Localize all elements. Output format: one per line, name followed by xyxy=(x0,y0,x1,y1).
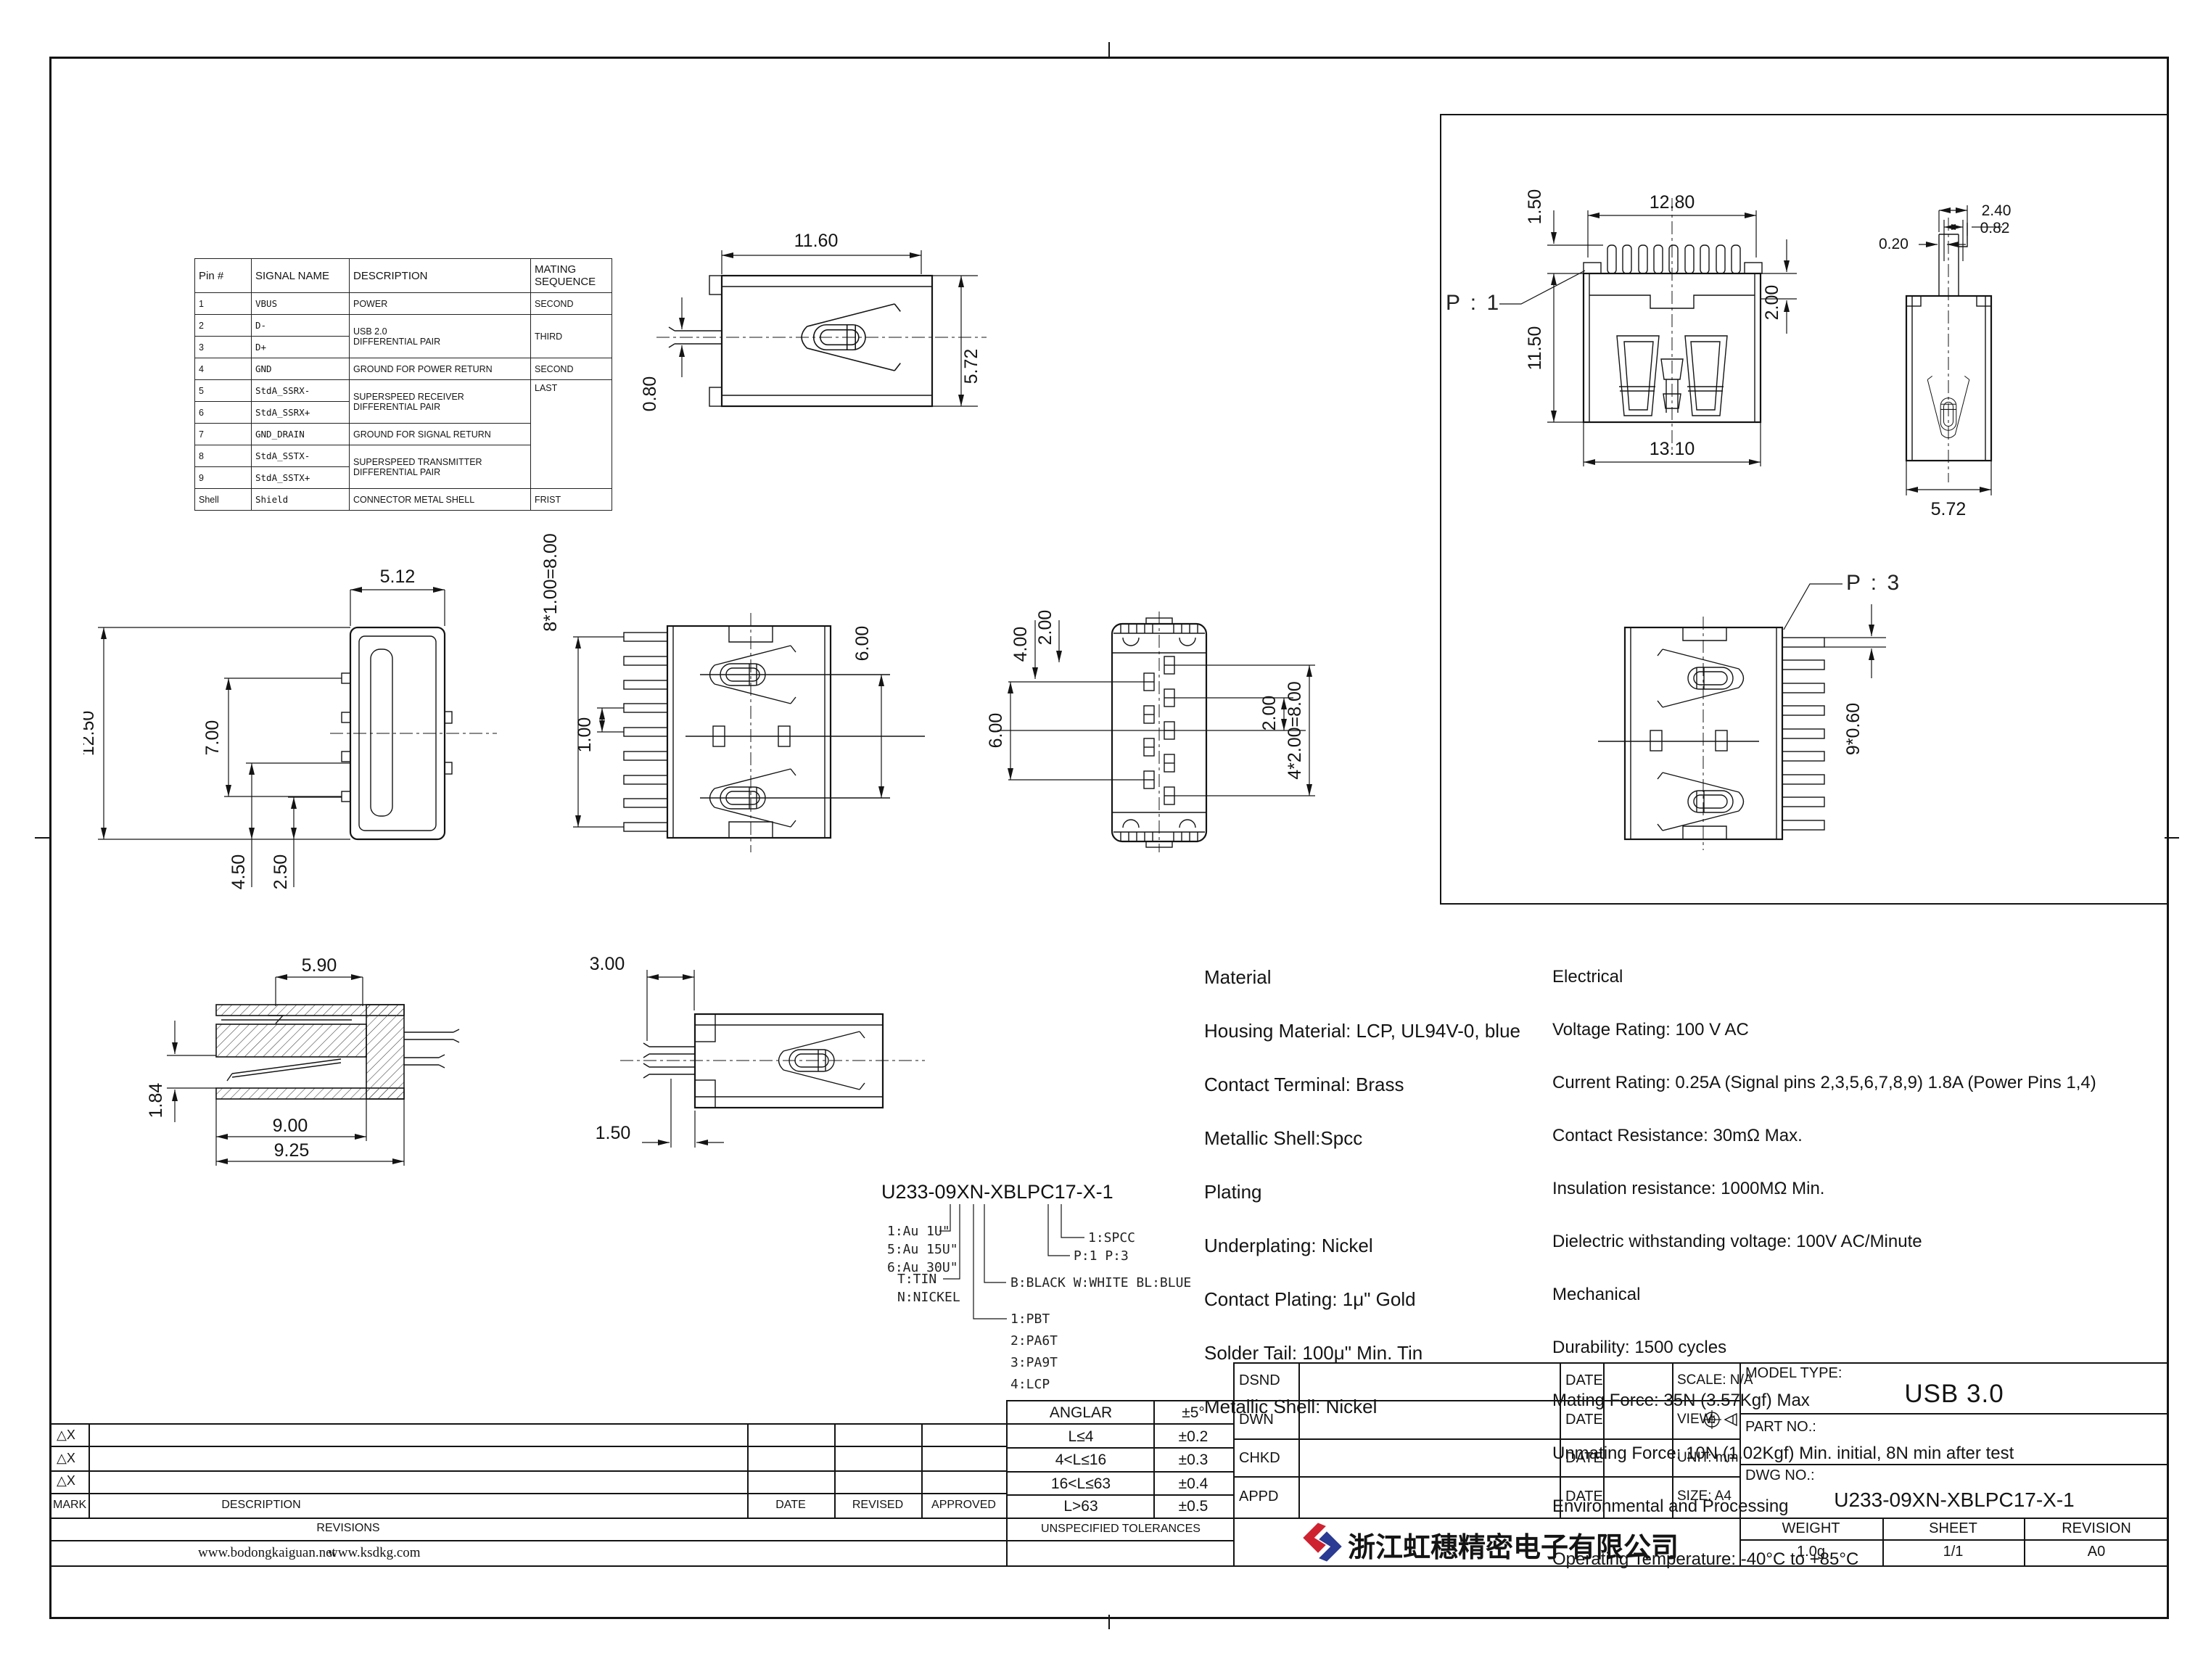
pin-description: CONNECTOR METAL SHELL xyxy=(350,489,531,511)
date-header: DATE xyxy=(747,1499,834,1512)
dim-label: 11.60 xyxy=(794,231,839,251)
tolerance-range: L>63 xyxy=(1008,1498,1153,1515)
view-label-p3: P : 3 xyxy=(1846,571,1901,595)
pin-description: SUPERSPEED RECEIVER DIFFERENTIAL PAIR xyxy=(350,380,531,424)
view-tail: 3.00 1.50 xyxy=(562,925,947,1208)
pin-description: GROUND FOR POWER RETURN xyxy=(350,358,531,380)
bottom-view-geometry xyxy=(1112,612,1206,852)
dim-label: 1.00 xyxy=(575,717,595,753)
dim-label: 1.84 xyxy=(146,1083,166,1119)
pin-number: 6 xyxy=(195,402,252,424)
dim-label: 5.72 xyxy=(1931,499,1967,519)
dim-label: 2.00 xyxy=(1259,696,1280,731)
tail-view-dimensions xyxy=(642,970,724,1148)
top-pins xyxy=(1607,245,1740,273)
dim-label: 12.80 xyxy=(1650,192,1695,213)
note-line: Housing Material: LCP, UL94V-0, blue xyxy=(1204,1017,1520,1045)
view-section: 5.90 1.84 9.00 9.25 xyxy=(127,925,482,1208)
date-label: DATE xyxy=(1565,1450,1603,1467)
dwg-no-value: U233-09XN-XBLPC17-X-1 xyxy=(1739,1488,2169,1512)
mating-sequence: SECOND xyxy=(531,358,612,380)
plating-option: T:TIN xyxy=(897,1272,936,1287)
view-side-upper: 11.60 5.72 0.80 xyxy=(638,189,1030,464)
note-line: Dielectric withstanding voltage: 100V AC… xyxy=(1552,1228,2096,1255)
signal-name: GND xyxy=(252,358,350,380)
dim-label: 11.50 xyxy=(1525,326,1545,371)
view-top-right-p3: P : 3 9*0.60 xyxy=(1578,533,2046,903)
housing-option: 2:PA6T xyxy=(1010,1333,1058,1348)
note-line: Plating xyxy=(1204,1178,1520,1206)
signal-name: StdA_SSRX+ xyxy=(252,402,350,424)
pin-number: 4 xyxy=(195,358,252,380)
dim-label: 3.00 xyxy=(590,954,625,974)
solder-pins xyxy=(624,633,667,831)
mating-sequence: SECOND xyxy=(531,293,612,315)
dim-label: 12.50 xyxy=(83,711,98,757)
signal-name: Shield xyxy=(252,489,350,511)
part-no-label: PART NO.: xyxy=(1745,1419,1816,1436)
signal-name: D- xyxy=(252,315,350,337)
tolerance-range: 4<L≤16 xyxy=(1008,1452,1153,1469)
website-link[interactable]: www.bodongkaiguan.net xyxy=(198,1545,336,1561)
pin-number: 9 xyxy=(195,467,252,489)
tolerance-value: ±0.3 xyxy=(1153,1452,1233,1469)
projection-symbol-icon xyxy=(1703,1408,1738,1431)
col-pin: Pin # xyxy=(195,259,252,293)
dim-label: 1.50 xyxy=(1525,189,1545,225)
side-view-dimensions xyxy=(682,250,978,406)
plating-option: N:NICKEL xyxy=(897,1290,960,1305)
size-value: SIZE: A4 xyxy=(1677,1488,1732,1504)
view-top-left: 8*1.00=8.00 1.00 6.00 xyxy=(533,504,976,889)
pin-table-header-row: Pin # SIGNAL NAME DESCRIPTION MATING SEQ… xyxy=(195,259,612,293)
view-profile: 5.12 12.50 7.00 4.50 2.50 xyxy=(83,548,504,925)
tolerance-value: ±5° xyxy=(1153,1404,1233,1422)
dim-label: 0.80 xyxy=(640,376,660,412)
stem-view-geometry xyxy=(1906,218,1991,482)
pin-description: SUPERSPEED TRANSMITTER DIFFERENTIAL PAIR xyxy=(350,445,531,489)
tail-view-geometry xyxy=(620,1014,925,1108)
dim-label: 6.00 xyxy=(986,713,1006,749)
website-link[interactable]: www.ksdkg.com xyxy=(328,1545,421,1561)
col-signal: SIGNAL NAME xyxy=(252,259,350,293)
solder-pins xyxy=(1782,638,1824,830)
dim-label: 4.00 xyxy=(1010,627,1031,662)
port-options: P:1 P:3 xyxy=(1074,1248,1129,1264)
top-view-right-dimensions xyxy=(1784,584,1886,678)
gold-option: 1:Au 1U" xyxy=(887,1224,950,1239)
centering-tick-bottom xyxy=(1108,1615,1110,1629)
sheet-label: SHEET xyxy=(1882,1520,2024,1537)
dim-label: 8*1.00=8.00 xyxy=(540,533,561,632)
revisions-title: REVISIONS xyxy=(283,1522,413,1535)
table-row: 1 VBUS POWER SECOND xyxy=(195,293,612,315)
part-number-leader-lines xyxy=(939,1204,1084,1319)
dim-label: 13.10 xyxy=(1650,439,1695,459)
pin-number: 5 xyxy=(195,380,252,402)
pin-number: 3 xyxy=(195,337,252,358)
dim-label: 0.20 xyxy=(1879,236,1909,252)
top-view-geometry xyxy=(624,613,925,852)
dim-label: 2.00 xyxy=(1762,285,1782,321)
dim-label: 1.50 xyxy=(596,1123,631,1143)
table-row: 5 StdA_SSRX- SUPERSPEED RECEIVER DIFFERE… xyxy=(195,380,612,402)
dim-label: 9.25 xyxy=(274,1140,310,1161)
weight-value: 1.0g xyxy=(1739,1544,1882,1560)
dwg-no-label: DWG NO.: xyxy=(1745,1467,1815,1484)
tolerance-footer: UNSPECIFIED TOLERANCES xyxy=(1008,1523,1233,1536)
view-bottom: 4.00 2.00 6.00 2.00 4*2.00=8.00 xyxy=(983,548,1338,903)
note-line: Durability: 1500 cycles xyxy=(1552,1334,2096,1361)
pin-description: GROUND FOR SIGNAL RETURN xyxy=(350,424,531,445)
approved-header: APPROVED xyxy=(921,1499,1006,1512)
mark-header: MARK xyxy=(53,1499,86,1512)
view-label-p1: P : 1 xyxy=(1446,291,1501,315)
mating-sequence: LAST xyxy=(531,380,612,489)
note-line: Contact Plating: 1μ" Gold xyxy=(1204,1285,1520,1313)
section-geometry xyxy=(216,1005,459,1099)
dim-label: 5.12 xyxy=(380,567,416,587)
pin-assignment-table: Pin # SIGNAL NAME DESCRIPTION MATING SEQ… xyxy=(194,258,612,511)
description-header: DESCRIPTION xyxy=(196,1499,326,1512)
note-line: Insulation resistance: 1000MΩ Min. xyxy=(1552,1175,2096,1202)
front-view-geometry xyxy=(1584,198,1762,455)
tolerance-value: ±0.5 xyxy=(1153,1498,1233,1515)
color-options: B:BLACK W:WHITE BL:BLUE xyxy=(1010,1275,1191,1290)
tolerance-range: L≤4 xyxy=(1008,1428,1153,1446)
pin-description: POWER xyxy=(350,293,531,315)
revision-value: A0 xyxy=(2024,1544,2169,1560)
note-line: Electrical xyxy=(1552,963,2096,990)
dim-label: 4.50 xyxy=(228,855,249,890)
dim-label: 0.82 xyxy=(1980,220,2010,236)
dim-label: 9*0.60 xyxy=(1843,703,1864,755)
pin-description: USB 2.0 DIFFERENTIAL PAIR xyxy=(350,315,531,358)
pin-number: Shell xyxy=(195,489,252,511)
note-line: Contact Resistance: 30mΩ Max. xyxy=(1552,1122,2096,1149)
revision-mark: △X xyxy=(57,1473,75,1488)
note-line: Contact Terminal: Brass xyxy=(1204,1071,1520,1098)
tolerance-value: ±0.4 xyxy=(1153,1475,1233,1493)
note-line: Underplating: Nickel xyxy=(1204,1232,1520,1259)
unit-value: UNIT: mm xyxy=(1677,1450,1738,1466)
shell-option: 1:SPCC xyxy=(1088,1230,1135,1245)
note-line: Current Rating: 0.25A (Signal pins 2,3,5… xyxy=(1552,1069,2096,1096)
model-type-value: USB 3.0 xyxy=(1739,1380,2169,1409)
col-description: DESCRIPTION xyxy=(350,259,531,293)
note-line: Mechanical xyxy=(1552,1281,2096,1308)
dim-label: 5.72 xyxy=(961,349,981,384)
gold-option: 5:Au 15U" xyxy=(887,1242,958,1257)
centering-tick-top xyxy=(1108,42,1110,57)
date-label: DATE xyxy=(1565,1412,1603,1428)
dim-label: 6.00 xyxy=(852,626,873,662)
pin-number: 1 xyxy=(195,293,252,315)
signal-name: VBUS xyxy=(252,293,350,315)
weight-label: WEIGHT xyxy=(1739,1520,1882,1537)
side-view-geometry xyxy=(656,276,987,406)
dim-label: 2.50 xyxy=(271,855,291,890)
note-line: Metallic Shell:Spcc xyxy=(1204,1124,1520,1152)
profile-view-geometry xyxy=(330,627,497,839)
dim-label: 2.00 xyxy=(1035,610,1055,646)
tolerance-range: 16<L≤63 xyxy=(1008,1475,1153,1493)
dim-label: 4*2.00=8.00 xyxy=(1285,681,1305,780)
signal-name: StdA_SSTX+ xyxy=(252,467,350,489)
drawing-sheet: Pin # SIGNAL NAME DESCRIPTION MATING SEQ… xyxy=(0,0,2211,1680)
table-row: 4 GND GROUND FOR POWER RETURN SECOND xyxy=(195,358,612,380)
housing-option: 1:PBT xyxy=(1010,1312,1050,1327)
company-logo-icon xyxy=(1302,1522,1343,1562)
part-number-title: U233-09XN-XBLPC17-X-1 xyxy=(881,1181,1113,1203)
col-mating: MATING SEQUENCE xyxy=(531,259,612,293)
date-label: DATE xyxy=(1565,1488,1603,1505)
dim-label: 2.40 xyxy=(1982,202,2012,219)
view-stem: 2.40 0.82 0.20 5.72 xyxy=(1857,178,2169,533)
sign-label-chkd: CHKD xyxy=(1239,1450,1280,1467)
top-view-right-geometry xyxy=(1598,617,1824,850)
sheet-value: 1/1 xyxy=(1882,1544,2024,1560)
note-line: Voltage Rating: 100 V AC xyxy=(1552,1016,2096,1043)
tolerance-value: ±0.2 xyxy=(1153,1428,1233,1446)
note-line: Material xyxy=(1204,963,1520,991)
revised-header: REVISED xyxy=(834,1499,921,1512)
signal-name: StdA_SSTX- xyxy=(252,445,350,467)
sign-label-dwn: DWN xyxy=(1239,1412,1274,1428)
signal-name: StdA_SSRX- xyxy=(252,380,350,402)
tolerance-range: ANGLAR xyxy=(1008,1404,1153,1422)
pin-number: 2 xyxy=(195,315,252,337)
mating-sequence: THIRD xyxy=(531,315,612,358)
sign-label-dsnd: DSND xyxy=(1239,1372,1280,1389)
company-name: 浙江虹穗精密电子有限公司 xyxy=(1348,1525,1679,1565)
housing-option: 4:LCP xyxy=(1010,1377,1050,1392)
stem-view-dimensions xyxy=(1906,205,2002,495)
revision-mark: △X xyxy=(57,1451,75,1466)
dim-label: 9.00 xyxy=(273,1116,308,1136)
pin-number: 7 xyxy=(195,424,252,445)
material-notes: Material Housing Material: LCP, UL94V-0,… xyxy=(1204,937,1520,1446)
sign-label-appd: APPD xyxy=(1239,1488,1278,1505)
housing-option: 3:PA9T xyxy=(1010,1355,1058,1370)
revision-label: REVISION xyxy=(2024,1520,2169,1537)
note-line: Unmating Force: 10N (1.02Kgf) Min. initi… xyxy=(1552,1440,2096,1467)
signal-name: GND_DRAIN xyxy=(252,424,350,445)
dim-label: 7.00 xyxy=(202,720,223,756)
revision-mark: △X xyxy=(57,1428,75,1443)
dim-label: 5.90 xyxy=(302,955,337,976)
pin-number: 8 xyxy=(195,445,252,467)
date-label: DATE xyxy=(1565,1372,1603,1389)
signal-name: D+ xyxy=(252,337,350,358)
centering-tick-left xyxy=(35,837,49,839)
table-row: 2 D- USB 2.0 DIFFERENTIAL PAIR THIRD xyxy=(195,315,612,337)
